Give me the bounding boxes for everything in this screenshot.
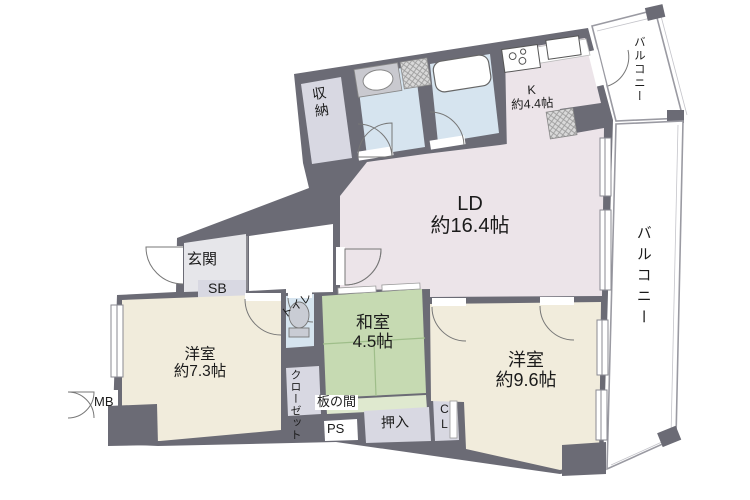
label-balcony-right: バルコニー <box>634 225 651 330</box>
label-meter-box: MB <box>94 395 114 410</box>
label-bedroom-73: 洋室 約7.3帖 <box>152 346 248 381</box>
label-shoe-box: SB <box>208 281 227 297</box>
hallway-floor <box>249 224 333 293</box>
label-bedroom-96: 洋室 約9.6帖 <box>460 350 592 390</box>
label-closet: クローゼット <box>287 369 302 417</box>
refrigerator-space <box>546 108 577 139</box>
label-kitchen: K 約4.4帖 <box>491 81 572 113</box>
label-futon-closet: 押入 <box>381 415 410 432</box>
label-pipe-space: PS <box>327 422 344 437</box>
washing-machine-space <box>400 58 431 89</box>
stove-icon <box>502 45 541 73</box>
label-tatami-room: 和室 4.5帖 <box>330 313 416 351</box>
label-balcony-top: バルコニー <box>632 36 645 104</box>
label-entrance: 玄関 <box>187 252 217 269</box>
label-ld: LD 約16.4帖 <box>420 193 520 238</box>
pillar-bottom-left <box>108 404 158 446</box>
kitchen-sink-icon <box>546 36 581 59</box>
floor-plan: LD 約16.4帖 K 約4.4帖 和室 4.5帖 洋室 約7.3帖 洋室 約9… <box>0 0 750 500</box>
pillar-bottom-right <box>562 442 606 476</box>
label-wooden-floor: 板の間 <box>315 395 358 410</box>
label-closet-cl: CL <box>437 402 450 432</box>
